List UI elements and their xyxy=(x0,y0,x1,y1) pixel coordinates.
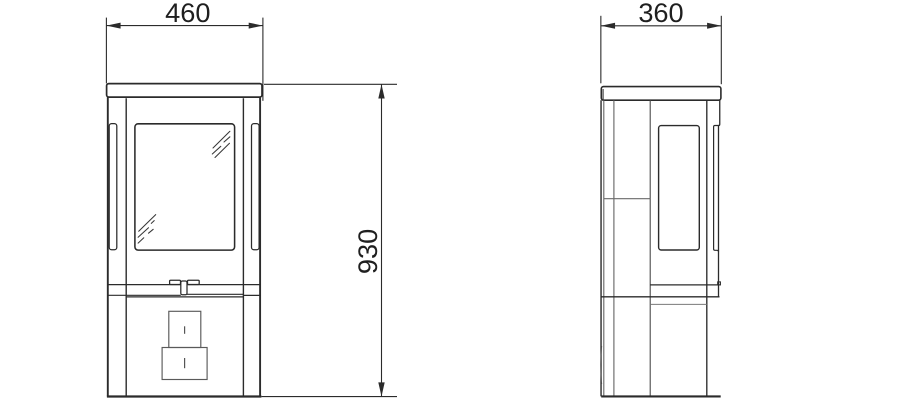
svg-text:930: 930 xyxy=(352,229,383,274)
svg-text:460: 460 xyxy=(165,0,210,28)
svg-text:360: 360 xyxy=(638,0,683,28)
